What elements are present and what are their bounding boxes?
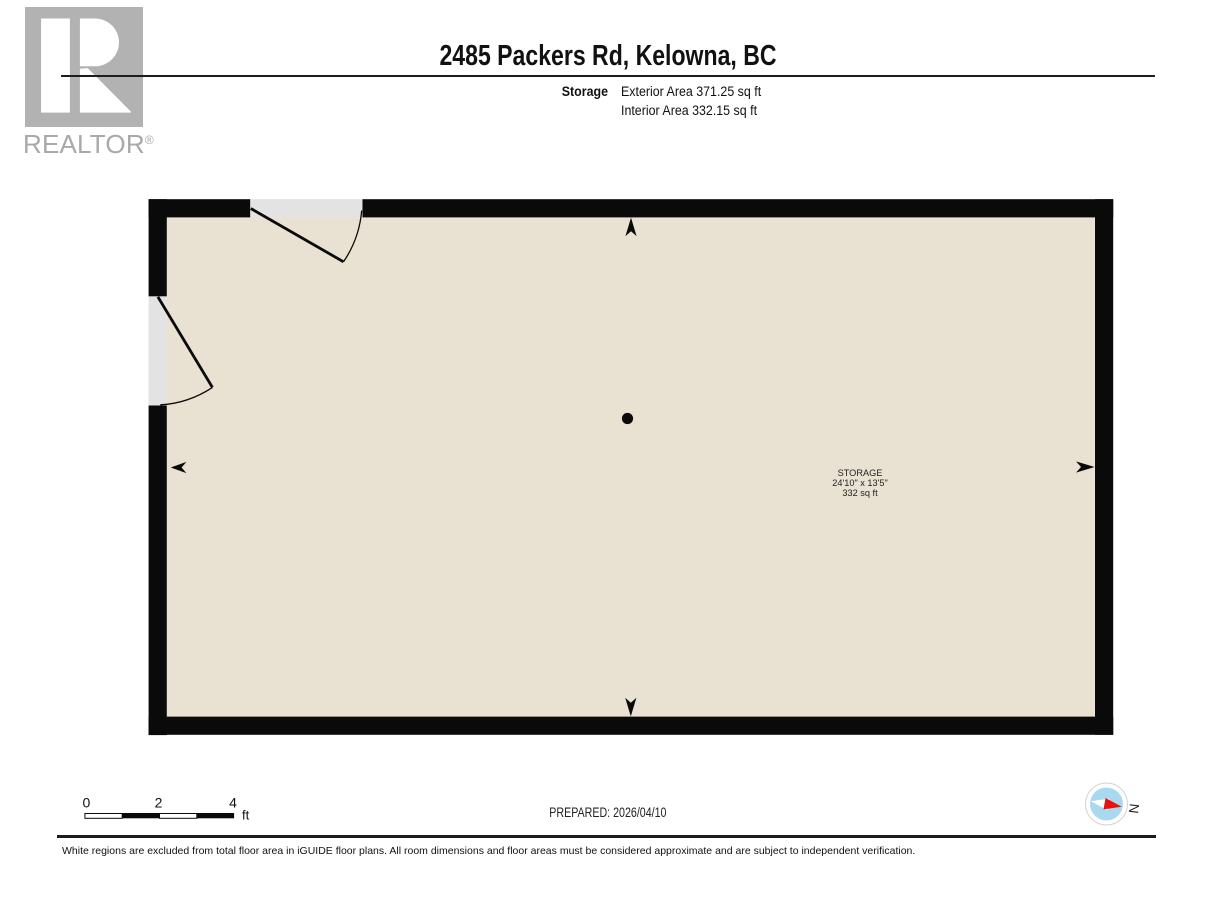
svg-text:332 sq ft: 332 sq ft [842,488,878,498]
svg-text:0: 0 [83,795,91,811]
svg-text:STORAGE: STORAGE [838,468,883,478]
svg-text:24'10" x 13'5": 24'10" x 13'5" [832,478,888,488]
svg-text:N: N [1126,803,1142,815]
